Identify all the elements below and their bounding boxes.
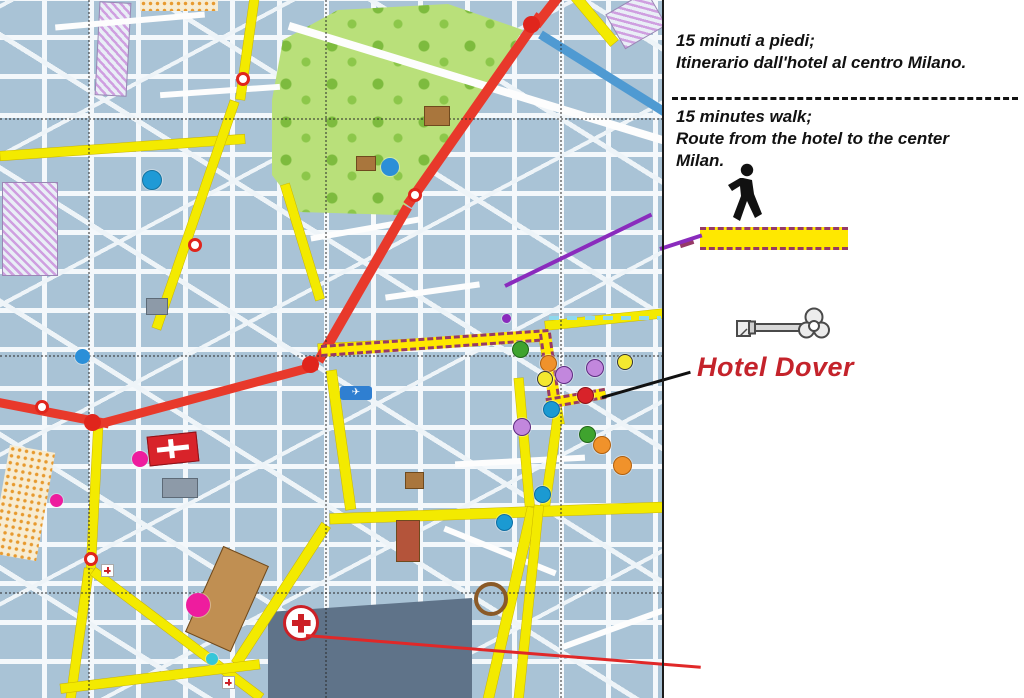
route-start-dot [502,314,511,323]
blue-dot [75,349,90,364]
pharmacy-marker [543,401,560,418]
duomo-cross [168,439,175,458]
metro-missori [84,552,98,566]
palazzo-reale-building [162,478,198,498]
info-panel: 15 minuti a piedi; Itinerario dall'hotel… [664,0,1024,698]
gessate-church [405,472,424,489]
metro-porta-venezia [523,16,540,33]
title-en-line1: 15 minutes walk; [676,106,949,128]
rotonda-besana [474,582,508,616]
hospital-cross-icon [222,676,235,689]
museum-building [356,156,376,171]
map-panel-divider [662,0,664,698]
tram-12-badge [142,170,162,190]
hotel-name: Hotel Dover [697,352,854,383]
metro-san-babila [302,356,319,373]
title-en-line3: Milan. [676,150,949,172]
metro-montenapoleone [188,238,202,252]
pizzeria-marker [555,366,573,384]
teatro-scala-building [146,298,168,315]
pizzeria-marker [513,418,531,436]
road-manzoni [152,100,239,330]
title-it-line2: Itinerario dall'hotel al centro Milano. [676,52,966,74]
road-fatebenefratelli [0,134,245,160]
supermarket-marker [512,341,529,358]
parking-marker [613,456,632,475]
route-legend-sample [700,227,848,250]
hatched-block [2,182,58,276]
magenta-dot [186,593,210,617]
dotted-strip [140,0,218,11]
metro-cordusio [35,400,49,414]
blue-dot [381,158,399,176]
graticule [0,118,663,120]
road-bianca-maria [514,378,535,513]
pharmacy-marker [496,514,513,531]
hospital-cross-icon [101,564,114,577]
planetario-building [424,106,450,126]
graticule [0,592,663,594]
metro-palestro [408,188,422,202]
dashed-divider [672,97,1018,100]
road-mozart [385,281,480,300]
duomo-cathedral [147,431,200,466]
title-en-line2: Route from the hotel to the center [676,128,949,150]
laundry-marker [537,371,553,387]
road-vittorio-emanuele [94,361,318,429]
map-area: ✈ [0,0,663,698]
pizzeria-marker [586,359,604,377]
metro-duomo [84,414,101,431]
pharmacy-marker [534,486,551,503]
hatched-block [95,1,132,97]
road-spartaco [562,606,663,649]
tram-dashes [549,316,661,320]
parking-marker [593,436,611,454]
road-montebello [160,84,280,98]
title-english: 15 minutes walk; Route from the hotel to… [676,106,949,172]
porta-vittoria-palace [396,520,420,562]
walking-person-icon [722,163,768,230]
metro-turati [236,72,250,86]
cyan-dot [206,653,218,665]
title-italian: 15 minuti a piedi; Itinerario dall'hotel… [676,30,966,74]
magenta-dot [50,494,63,507]
dotted-strip [0,445,55,561]
title-it-line1: 15 minuti a piedi; [676,30,966,52]
laundry-marker [617,354,633,370]
hotel-dover-marker [577,387,594,404]
parking-marker [540,355,557,372]
key-icon [734,305,834,354]
airport-icon: ✈ [340,386,372,400]
magenta-dot [132,451,148,467]
milan-map-page: ✈ 15 minuti a piedi; Itinerario dall'hot… [0,0,1024,698]
